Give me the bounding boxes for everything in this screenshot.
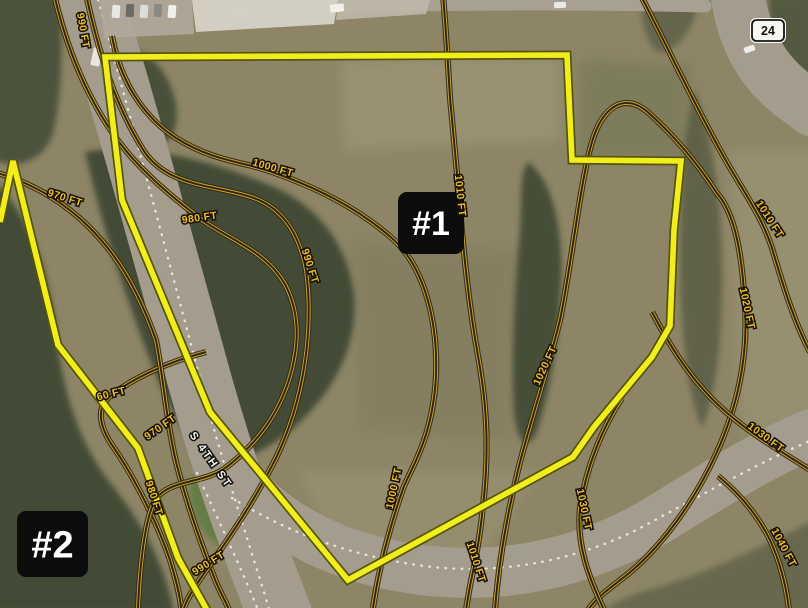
vehicle (140, 5, 149, 18)
marker-label: #2 (31, 525, 73, 567)
vehicle (126, 4, 134, 17)
vehicle (112, 5, 121, 19)
marker-label: #1 (412, 205, 450, 243)
vehicle (554, 2, 566, 8)
route-shield: 24 (750, 18, 786, 43)
field-patch (578, 60, 690, 160)
vehicle (168, 5, 177, 19)
vehicle (330, 3, 345, 12)
map-marker-2[interactable]: #2 (17, 511, 88, 577)
satellite-map: #1#260 FT970 FT970 FT980 FT980 FT990 FT9… (0, 0, 808, 608)
route-shield-label: 24 (761, 24, 775, 38)
map-marker-1[interactable]: #1 (398, 192, 464, 254)
map-canvas: #1#260 FT970 FT970 FT980 FT980 FT990 FT9… (0, 0, 808, 608)
vehicle (154, 4, 162, 17)
